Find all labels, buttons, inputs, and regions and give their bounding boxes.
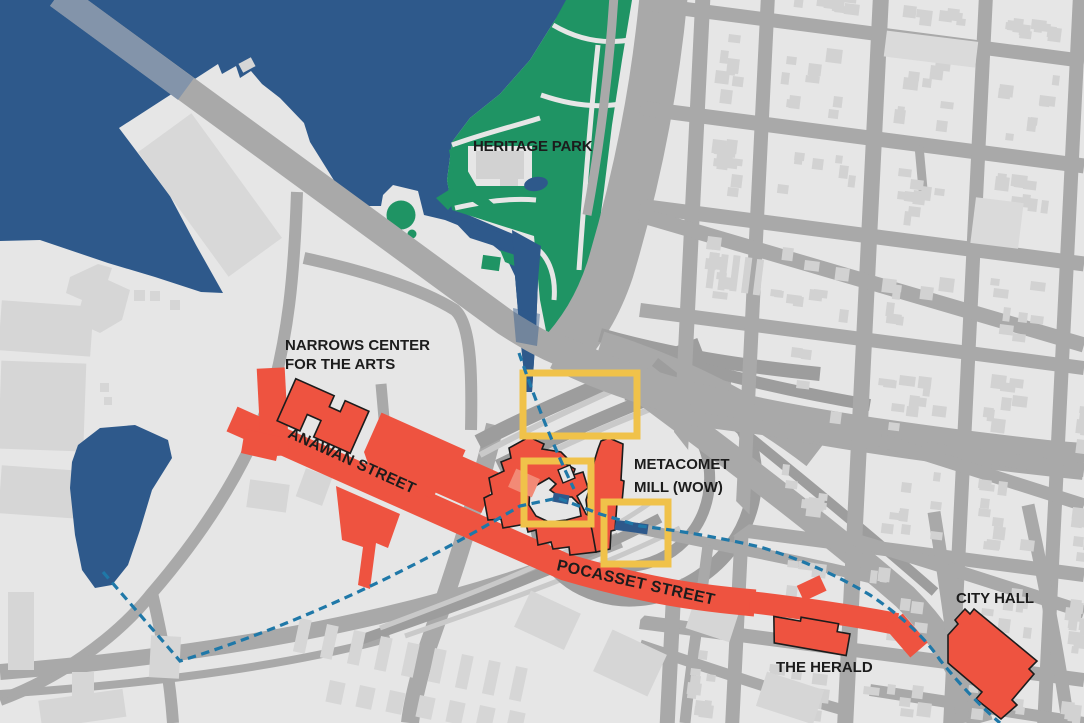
svg-text:FOR THE ARTS: FOR THE ARTS — [285, 356, 395, 373]
svg-text:NARROWS CENTER: NARROWS CENTER — [285, 337, 430, 354]
svg-text:MILL (WOW): MILL (WOW) — [634, 479, 723, 496]
svg-text:METACOMET: METACOMET — [634, 456, 730, 473]
svg-text:HERITAGE PARK: HERITAGE PARK — [473, 138, 593, 155]
svg-text:CITY HALL: CITY HALL — [956, 590, 1034, 607]
svg-text:THE HERALD: THE HERALD — [776, 659, 873, 676]
